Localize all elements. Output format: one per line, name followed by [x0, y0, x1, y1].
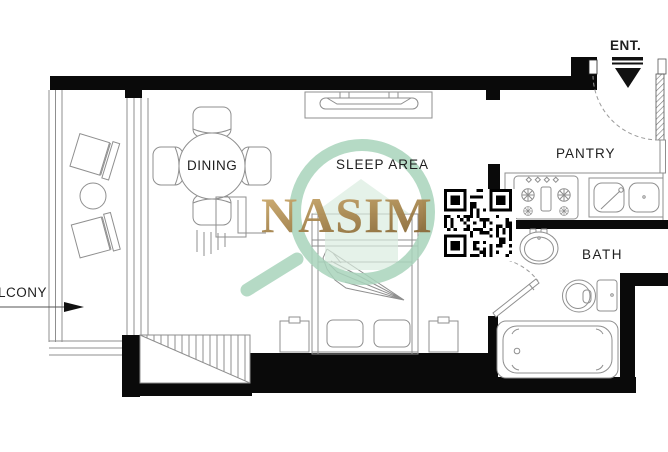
stove [514, 176, 578, 219]
ledge-hatch [140, 335, 250, 383]
brand-watermark: NASIM [261, 186, 433, 244]
dining-set [153, 107, 271, 256]
balcony-chair [69, 132, 119, 180]
balcony-pointer-arrow [0, 302, 84, 312]
kitchen-counter [505, 173, 663, 220]
sleep-area-label: SLEEP AREA [336, 157, 429, 172]
bathroom-door [493, 258, 539, 317]
pantry-label: PANTRY [556, 146, 616, 161]
toilet [563, 280, 618, 312]
pillow [374, 320, 410, 347]
entrance-arrow-icon [612, 57, 643, 88]
magnifier-handle [247, 259, 297, 290]
bath-label: BATH [582, 247, 623, 262]
floor-plan: LCONY DINING SLEEP AREA PANTRY BATH ENT.… [0, 0, 668, 452]
pillow [327, 320, 363, 347]
dining-label: DINING [187, 158, 237, 173]
balcony-table [80, 183, 106, 209]
bathtub [497, 321, 618, 378]
kitchen-sink [589, 178, 663, 217]
qr-code [444, 189, 516, 261]
nightstand [429, 317, 458, 352]
entrance-label: ENT. [610, 38, 641, 53]
balcony-label: LCONY [0, 285, 47, 300]
entrance-door-swing [593, 76, 659, 140]
balcony-chair [71, 212, 120, 259]
bathroom-sink [520, 229, 558, 264]
balcony [0, 90, 148, 355]
tv-console [305, 92, 432, 118]
nightstand [280, 317, 309, 352]
